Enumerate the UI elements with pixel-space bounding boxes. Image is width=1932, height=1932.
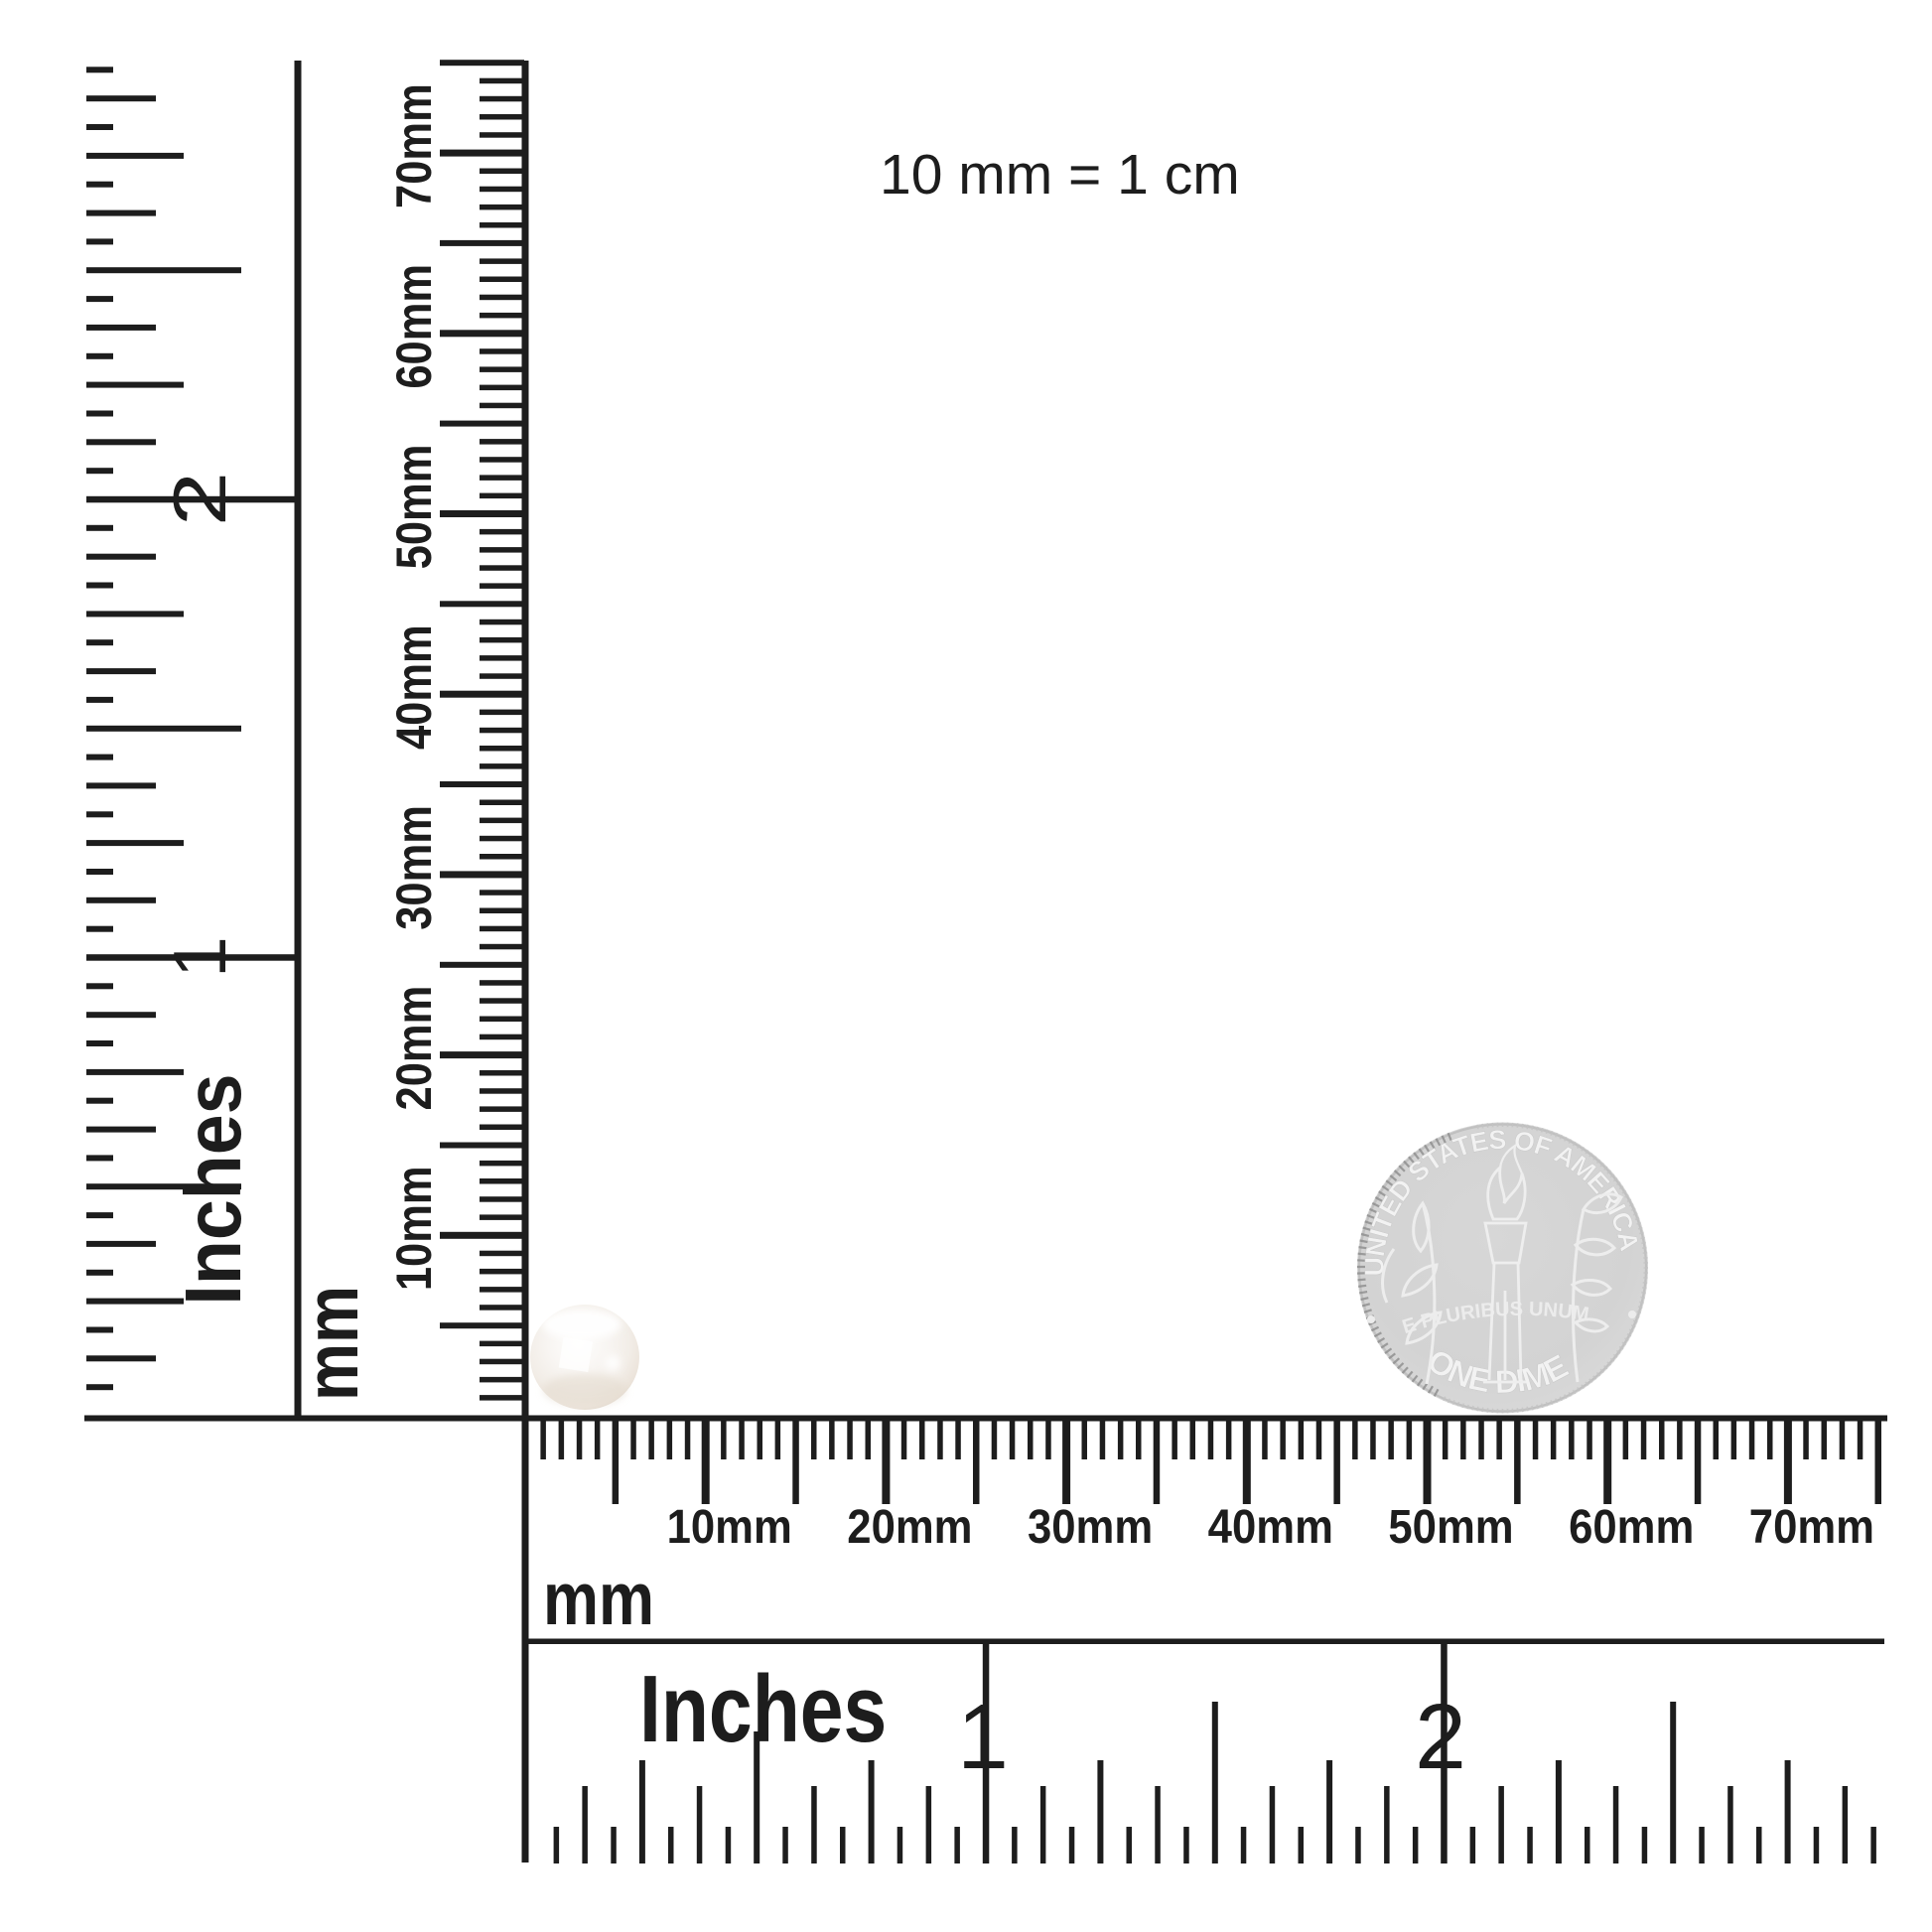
svg-text:2: 2 (1415, 1685, 1466, 1788)
svg-text:70mm: 70mm (1749, 1499, 1874, 1553)
svg-text:2: 2 (158, 472, 241, 526)
svg-text:50mm: 50mm (386, 445, 441, 570)
svg-text:10mm: 10mm (386, 1166, 441, 1291)
svg-text:Inches: Inches (639, 1656, 887, 1762)
svg-text:60mm: 60mm (386, 264, 441, 389)
svg-text:20mm: 20mm (386, 986, 441, 1111)
svg-text:1: 1 (957, 1685, 1009, 1788)
svg-text:40mm: 40mm (1208, 1499, 1333, 1553)
svg-text:10mm: 10mm (667, 1499, 792, 1553)
svg-text:10 mm = 1 cm: 10 mm = 1 cm (880, 143, 1240, 207)
svg-text:30mm: 30mm (386, 805, 441, 930)
svg-text:30mm: 30mm (1028, 1499, 1153, 1553)
svg-text:70mm: 70mm (386, 83, 441, 208)
svg-text:mm: mm (543, 1557, 654, 1640)
svg-text:1: 1 (158, 936, 241, 978)
svg-text:Inches: Inches (169, 1073, 258, 1305)
svg-text:40mm: 40mm (386, 624, 441, 750)
svg-text:50mm: 50mm (1388, 1499, 1513, 1553)
svg-text:60mm: 60mm (1569, 1499, 1694, 1553)
svg-text:mm: mm (290, 1286, 373, 1401)
svg-text:20mm: 20mm (847, 1499, 972, 1553)
